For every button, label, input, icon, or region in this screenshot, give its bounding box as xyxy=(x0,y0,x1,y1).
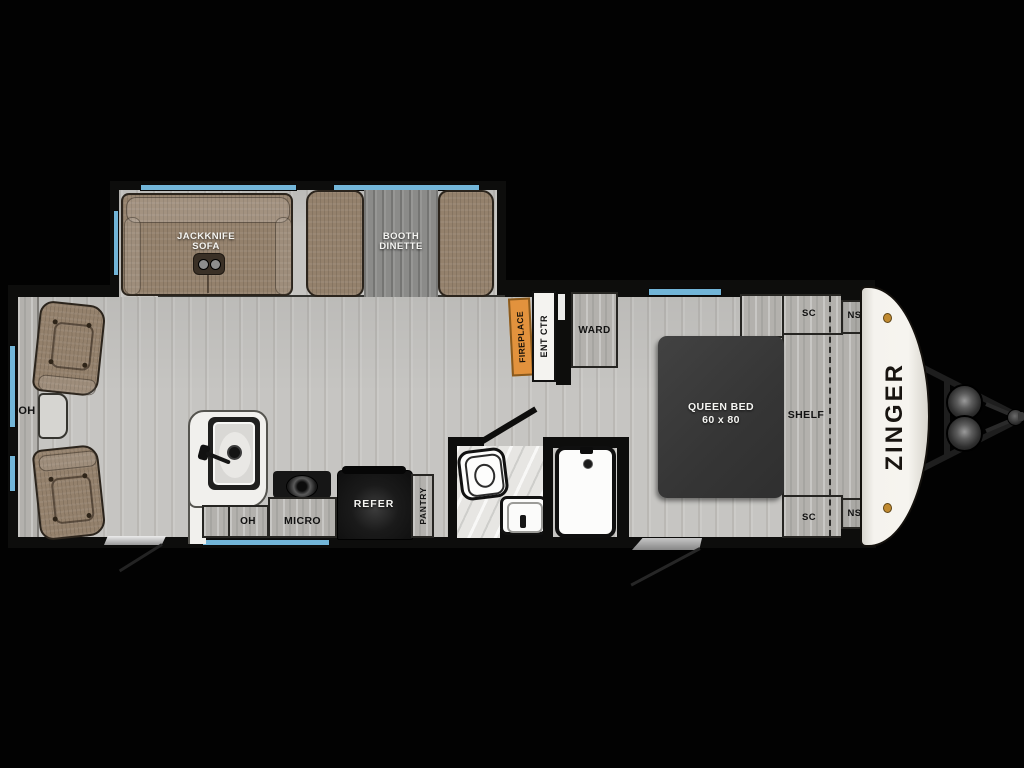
tub-faucet xyxy=(580,447,593,454)
fireplace-label: FIREPLACE xyxy=(515,311,528,363)
shelf-label: SHELF xyxy=(780,406,832,424)
pantry-cabinet: PANTRY xyxy=(411,474,434,538)
recliner-chair-top xyxy=(31,300,106,397)
sofa-label: JACKKNIFE SOFA xyxy=(146,228,266,256)
cupholder-hole xyxy=(198,259,209,270)
sofa-arm-right xyxy=(275,217,292,295)
micro-label: MICRO xyxy=(268,512,337,530)
stove-burner xyxy=(286,475,318,498)
zinger-brand-label: ZINGER xyxy=(881,362,909,471)
side-table xyxy=(38,393,68,439)
sofa-label-line2: SOFA xyxy=(192,242,219,253)
window-left-lower xyxy=(9,455,16,492)
ward-label: WARD xyxy=(571,322,618,338)
bed-label: QUEEN BED 60 x 80 xyxy=(660,398,782,430)
chair-stitching xyxy=(50,321,95,371)
sofa-arm-left xyxy=(124,217,141,295)
refrigerator-handle xyxy=(342,466,406,474)
oh-kitchen-label: OH xyxy=(228,513,268,529)
entertainment-center: ENT CTR xyxy=(532,291,556,382)
cap-marker-light-bottom xyxy=(883,503,892,513)
media-wall-gap xyxy=(558,294,565,320)
tub-drain xyxy=(583,459,593,469)
sofa-backrest xyxy=(126,197,290,223)
propane-tank-rear xyxy=(946,415,983,452)
front-cap: ZINGER xyxy=(860,286,930,547)
recliner-chair-bottom xyxy=(31,444,106,541)
tub-shower xyxy=(555,446,616,538)
kitchen-sink xyxy=(208,417,260,490)
entry-step-right-rail xyxy=(630,547,700,586)
sink-drain xyxy=(227,445,242,460)
tub-room-left-wall xyxy=(543,437,553,544)
ent-ctr-label: ENT CTR xyxy=(539,315,549,358)
cupholder-hole xyxy=(210,259,221,270)
stove-cooktop xyxy=(273,471,331,498)
hitch-ball-stub xyxy=(1018,412,1024,421)
dinette-label: BOOTH DINETTE xyxy=(346,228,456,256)
slideout-window-left xyxy=(113,210,119,276)
entry-step-left xyxy=(104,536,166,545)
toilet xyxy=(456,446,510,501)
slideout-window-sofa xyxy=(140,184,297,191)
bed-head-cabinet xyxy=(740,294,784,338)
cap-marker-light-top xyxy=(883,313,892,323)
window-kitchen xyxy=(202,539,330,546)
bath-right-wall xyxy=(617,437,629,544)
refer-label: REFER xyxy=(337,496,411,512)
pantry-label: PANTRY xyxy=(418,487,428,525)
entry-step-right xyxy=(632,538,702,550)
bath-sink xyxy=(500,496,547,535)
dinette-label-line2: DINETTE xyxy=(379,242,422,253)
floorplan-scene: JACKKNIFE SOFA BOOTH DINETTE OH xyxy=(0,0,1024,768)
sc-bottom-label: SC xyxy=(785,509,833,525)
chair-footrest xyxy=(38,450,97,472)
window-bedroom xyxy=(648,288,722,296)
bath-sink-tap xyxy=(520,515,526,528)
bed-label-line2: 60 x 80 xyxy=(702,414,740,427)
fireplace: FIREPLACE xyxy=(508,297,534,376)
sc-top-label: SC xyxy=(785,305,833,321)
bed-label-line1: QUEEN BED xyxy=(688,401,754,414)
sofa-cupholder xyxy=(193,253,225,275)
bath-left-wall xyxy=(448,437,457,544)
